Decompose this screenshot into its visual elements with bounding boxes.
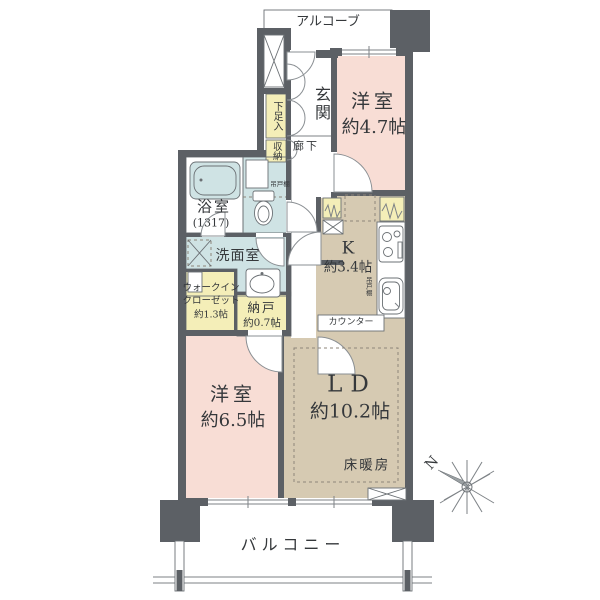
kitchen-name: K [342,241,355,258]
pillar-bottom-left [160,500,200,542]
shoe-cabinet-label: 下足入 [271,101,281,131]
kitchen-size: 約3.4帖 [324,261,372,275]
entrance-door-arc [287,52,315,80]
bedroom1-size: 約4.7帖 [342,119,407,137]
corridor-label: 廊下 [293,141,319,152]
kitchen-shelf-right [380,197,404,221]
wic-label-2: クローゼット [182,296,239,306]
bathroom-size: (1317) [193,218,230,229]
washroom-label: 洗面室 [216,249,261,263]
bedroom2-size: 約6.5帖 [201,412,266,430]
counter-label: カウンター [328,319,373,328]
pipe-shaft [264,35,284,87]
toilet-cabinet [246,160,268,188]
kitchen-x-box [323,220,343,234]
stove-icon [379,226,403,262]
toilet-icon [253,191,274,225]
wic-label-3: 約1.3帖 [194,310,228,320]
bathtub-icon [190,162,240,199]
pillar-bottom-right [392,500,434,542]
floor-plan: アルコーブ 玄関 下足入 収納 廊下 洋室 約4.7帖 浴室 (1317) 吊戸… [0,0,600,600]
floor-heating-label: 床暖房 [344,459,391,473]
alcove-label: アルコーブ [296,16,360,29]
ld-size: 約10.2帖 [310,403,390,422]
compass-icon [438,460,494,514]
pillar-top-right [390,10,430,52]
toilet-shelf-label: 吊戸棚 [270,181,290,188]
kitchen-shelf-label: 吊戸棚 [365,276,372,296]
wash-basin-icon [246,269,280,297]
hall-storage-label: 収納 [271,142,281,161]
bathroom-name: 浴室 [197,200,231,215]
bedroom1-name: 洋室 [351,93,397,112]
storage-room-name: 納戸 [247,302,276,315]
wic-label-1: ウォークイン [182,283,239,293]
sink-icon [379,278,403,314]
balcony-label: バルコニー [241,537,346,553]
shutter-box [368,488,406,500]
bedroom2-name: 洋室 [210,386,256,405]
kitchen-shelf-left [323,198,341,218]
ld-name: LD [327,374,377,397]
storage-room-size: 約0.7帖 [243,318,281,329]
floor-plan-graphics [0,0,600,600]
entrance-label: 玄関 [313,86,329,122]
